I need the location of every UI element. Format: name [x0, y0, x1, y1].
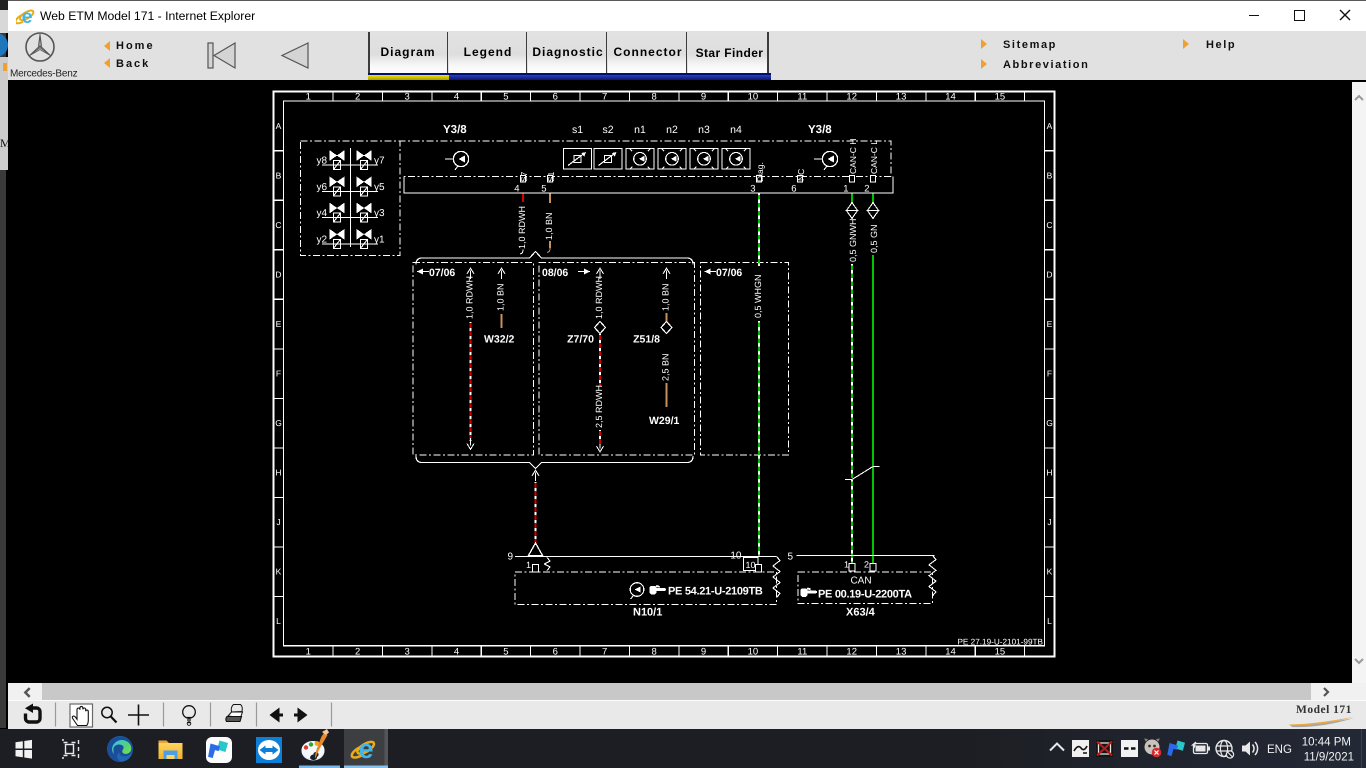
svg-text:8: 8	[651, 92, 656, 103]
svg-text:13: 13	[896, 646, 907, 657]
svg-text:07/06: 07/06	[429, 267, 455, 279]
svg-text:A: A	[1047, 121, 1053, 131]
svg-text:1,0 RDWH: 1,0 RDWH	[465, 276, 475, 319]
svg-text:2,5 BN: 2,5 BN	[661, 353, 671, 381]
svg-text:0,5 GNWH: 0,5 GNWH	[848, 218, 858, 262]
svg-text:08/06: 08/06	[542, 267, 568, 279]
svg-text:4: 4	[454, 646, 459, 657]
svg-text:NC: NC	[796, 169, 806, 181]
svg-text:1: 1	[843, 184, 848, 195]
svg-text:n2: n2	[666, 124, 678, 136]
svg-text:X63/4: X63/4	[846, 607, 876, 619]
svg-text:5: 5	[503, 646, 508, 657]
svg-text:Mercedes-Benz: Mercedes-Benz	[10, 69, 78, 80]
svg-text:e: e	[22, 6, 33, 27]
svg-text:S7: S7	[519, 171, 529, 182]
svg-text:11: 11	[797, 92, 807, 103]
svg-text:1: 1	[306, 92, 311, 103]
svg-text:e: e	[358, 734, 373, 764]
svg-text:1: 1	[306, 646, 311, 657]
svg-text:14: 14	[945, 92, 956, 103]
svg-text:3: 3	[404, 92, 409, 103]
svg-text:0,5 WHGN: 0,5 WHGN	[753, 274, 763, 318]
svg-text:6: 6	[791, 184, 796, 195]
svg-text:07/06: 07/06	[716, 267, 742, 279]
svg-text:CAN: CAN	[850, 576, 871, 587]
svg-text:y6: y6	[316, 182, 327, 193]
svg-text:8: 8	[651, 646, 656, 657]
svg-text:12: 12	[846, 92, 857, 103]
svg-text:D: D	[275, 270, 281, 280]
svg-text:s1: s1	[572, 124, 583, 136]
svg-text:y7: y7	[374, 156, 385, 167]
svg-text:W29/1: W29/1	[649, 415, 680, 427]
svg-text:10: 10	[730, 551, 742, 562]
svg-text:S1: S1	[546, 171, 556, 182]
svg-text:H: H	[275, 468, 281, 478]
svg-text:15: 15	[995, 92, 1006, 103]
svg-text:K: K	[1047, 567, 1053, 577]
svg-text:2: 2	[864, 560, 869, 570]
svg-text:N10/1: N10/1	[633, 607, 662, 619]
svg-text:y5: y5	[374, 182, 385, 193]
svg-text:2: 2	[355, 646, 360, 657]
svg-text:7: 7	[602, 92, 607, 103]
svg-text:6: 6	[553, 92, 558, 103]
svg-text:9: 9	[701, 646, 706, 657]
svg-text:Z51/8: Z51/8	[633, 334, 660, 346]
svg-text:1,0 RDWH: 1,0 RDWH	[594, 276, 604, 319]
svg-text:3: 3	[750, 184, 755, 195]
svg-text:Z7/70: Z7/70	[567, 334, 594, 346]
svg-text:3: 3	[404, 646, 409, 657]
svg-text:1,0 RDWH: 1,0 RDWH	[517, 206, 527, 249]
svg-text:D: D	[1046, 270, 1052, 280]
svg-text:1: 1	[526, 560, 531, 570]
svg-text:1,0 BN: 1,0 BN	[496, 283, 506, 311]
svg-text:F: F	[276, 369, 281, 379]
svg-text:PE 54.21-U-2109TB: PE 54.21-U-2109TB	[668, 586, 763, 598]
svg-text:Diag.: Diag.	[755, 162, 765, 182]
svg-text:9: 9	[507, 552, 513, 563]
svg-text:2,5 RDWH: 2,5 RDWH	[594, 385, 604, 428]
svg-text:W32/2: W32/2	[484, 334, 515, 346]
svg-text:y3: y3	[374, 208, 385, 219]
svg-text:C: C	[1046, 220, 1052, 230]
svg-text:E: E	[1047, 319, 1053, 329]
svg-text:12: 12	[846, 646, 857, 657]
svg-text:14: 14	[945, 646, 956, 657]
svg-text:Y3/8: Y3/8	[808, 124, 832, 136]
svg-text:B: B	[1047, 171, 1053, 181]
svg-text:1,0 BN: 1,0 BN	[544, 212, 554, 240]
svg-text:10: 10	[745, 560, 755, 570]
svg-text:y2: y2	[316, 234, 327, 245]
svg-text:11/9/2021: 11/9/2021	[1304, 752, 1354, 764]
svg-text:J: J	[276, 517, 280, 527]
svg-text:10:44 PM: 10:44 PM	[1302, 737, 1351, 749]
svg-text:9: 9	[701, 92, 706, 103]
svg-text:y4: y4	[316, 208, 327, 219]
svg-text:5: 5	[541, 184, 546, 195]
svg-text:G: G	[1046, 418, 1053, 428]
svg-text:4: 4	[514, 184, 519, 195]
svg-text:6: 6	[553, 646, 558, 657]
svg-text:L: L	[1047, 616, 1052, 626]
svg-text:K: K	[276, 567, 282, 577]
svg-text:1: 1	[844, 560, 849, 570]
svg-text:13: 13	[896, 92, 907, 103]
svg-text:10: 10	[748, 92, 759, 103]
svg-text:11: 11	[797, 646, 807, 657]
svg-text:CAN-C H: CAN-C H	[848, 139, 858, 174]
svg-text:5: 5	[503, 92, 508, 103]
svg-text:C: C	[275, 220, 281, 230]
svg-text:5: 5	[787, 552, 793, 563]
svg-text:10: 10	[748, 646, 759, 657]
svg-text:H: H	[1046, 468, 1052, 478]
svg-text:2: 2	[864, 184, 869, 195]
svg-text:J: J	[1047, 517, 1051, 527]
svg-text:1,0 BN: 1,0 BN	[661, 283, 671, 311]
svg-text:CAN-C L: CAN-C L	[869, 140, 879, 174]
svg-text:0,5 GN: 0,5 GN	[869, 224, 879, 253]
svg-text:Y3/8: Y3/8	[443, 124, 467, 136]
svg-text:n4: n4	[730, 124, 742, 136]
svg-text:n3: n3	[698, 124, 710, 136]
svg-text:n1: n1	[634, 124, 646, 136]
svg-text:PE 27.19-U-2101-99TB: PE 27.19-U-2101-99TB	[957, 638, 1043, 647]
svg-text:L: L	[276, 616, 281, 626]
svg-text:4: 4	[454, 92, 459, 103]
svg-text:ENG: ENG	[1267, 744, 1292, 756]
svg-text:y1: y1	[374, 234, 385, 245]
svg-text:7: 7	[602, 646, 607, 657]
svg-text:B: B	[276, 171, 282, 181]
svg-text:15: 15	[995, 646, 1006, 657]
svg-text:F: F	[1047, 369, 1052, 379]
svg-text:PE 00.19-U-2200TA: PE 00.19-U-2200TA	[818, 589, 912, 601]
svg-text:2: 2	[355, 92, 360, 103]
svg-text:s2: s2	[602, 124, 613, 136]
svg-text:E: E	[276, 319, 282, 329]
svg-text:y8: y8	[316, 156, 327, 167]
svg-text:A: A	[276, 121, 282, 131]
svg-text:G: G	[275, 418, 282, 428]
